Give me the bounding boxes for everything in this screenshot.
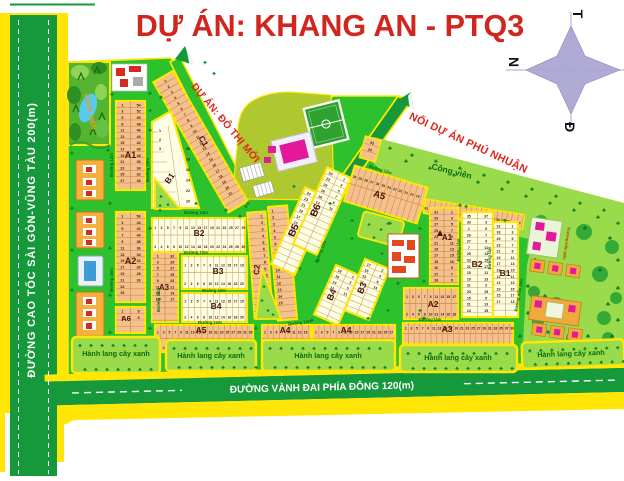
- svg-text:4: 4: [412, 312, 414, 316]
- svg-text:29: 29: [434, 216, 438, 220]
- svg-text:15: 15: [484, 290, 488, 294]
- svg-text:25: 25: [434, 229, 438, 233]
- svg-text:♣: ♣: [466, 366, 470, 372]
- svg-text:♣: ♣: [577, 361, 581, 367]
- svg-text:♣: ♣: [148, 226, 152, 232]
- svg-text:A4: A4: [341, 325, 352, 335]
- svg-text:25: 25: [229, 226, 233, 230]
- svg-text:Đường 12m: Đường 12m: [109, 153, 114, 177]
- svg-text:16: 16: [446, 312, 450, 316]
- svg-text:21: 21: [372, 331, 376, 335]
- svg-text:33: 33: [249, 331, 253, 335]
- svg-text:7: 7: [263, 254, 265, 258]
- svg-text:♣: ♣: [238, 214, 242, 220]
- svg-text:15: 15: [120, 141, 124, 145]
- svg-text:7: 7: [174, 331, 176, 335]
- svg-text:♣: ♣: [70, 151, 74, 157]
- svg-text:5: 5: [276, 331, 278, 335]
- svg-text:23: 23: [120, 285, 124, 289]
- svg-text:11: 11: [276, 275, 280, 279]
- svg-text:♣: ♣: [70, 288, 74, 294]
- svg-text:♣: ♣: [350, 236, 354, 242]
- svg-text:♣: ♣: [232, 365, 236, 371]
- svg-text:♣: ♣: [221, 365, 225, 371]
- svg-text:15: 15: [484, 309, 488, 313]
- svg-text:17: 17: [497, 300, 501, 304]
- svg-text:35: 35: [499, 327, 503, 331]
- svg-text:7: 7: [468, 246, 470, 250]
- svg-text:56: 56: [137, 214, 141, 218]
- svg-text:3: 3: [410, 327, 412, 331]
- svg-text:16: 16: [227, 282, 231, 286]
- svg-text:4: 4: [191, 316, 193, 320]
- svg-text:9: 9: [180, 331, 182, 335]
- svg-text:♣: ♣: [254, 365, 258, 371]
- svg-text:14: 14: [278, 295, 282, 299]
- svg-text:♣: ♣: [548, 201, 552, 207]
- svg-text:40: 40: [137, 147, 141, 151]
- svg-text:23: 23: [467, 290, 471, 294]
- svg-text:♣: ♣: [608, 235, 613, 242]
- svg-text:15: 15: [434, 260, 438, 264]
- svg-text:♣: ♣: [528, 348, 532, 354]
- svg-text:46: 46: [137, 129, 141, 133]
- svg-text:♣: ♣: [383, 365, 387, 371]
- svg-text:21: 21: [467, 265, 471, 269]
- svg-text:15: 15: [497, 294, 501, 298]
- svg-text:23: 23: [378, 331, 382, 335]
- svg-text:13: 13: [497, 281, 501, 285]
- svg-text:2: 2: [184, 316, 186, 320]
- svg-text:♣: ♣: [110, 92, 114, 98]
- svg-text:♣: ♣: [317, 365, 321, 371]
- svg-text:A1: A1: [442, 233, 453, 242]
- svg-text:6: 6: [274, 242, 276, 246]
- svg-text:3: 3: [321, 331, 323, 335]
- svg-text:16: 16: [227, 316, 231, 320]
- svg-text:7: 7: [121, 234, 123, 238]
- svg-text:23: 23: [120, 166, 124, 170]
- svg-text:13: 13: [191, 331, 195, 335]
- svg-text:15: 15: [227, 299, 231, 303]
- svg-text:33: 33: [467, 221, 471, 225]
- svg-text:8: 8: [264, 260, 266, 264]
- svg-text:1: 1: [184, 299, 186, 303]
- svg-text:8: 8: [121, 122, 123, 126]
- svg-text:♣: ♣: [586, 333, 591, 340]
- svg-text:B2: B2: [194, 228, 205, 238]
- svg-text:♣: ♣: [616, 285, 621, 292]
- svg-text:40: 40: [137, 234, 141, 238]
- svg-text:27: 27: [235, 226, 239, 230]
- svg-text:♣: ♣: [378, 346, 382, 352]
- svg-text:A2: A2: [125, 256, 137, 266]
- svg-text:1: 1: [157, 331, 159, 335]
- svg-text:18: 18: [434, 278, 438, 282]
- svg-text:B3: B3: [213, 266, 224, 276]
- svg-text:1: 1: [406, 295, 408, 299]
- svg-text:♣: ♣: [530, 187, 534, 193]
- svg-text:♣: ♣: [149, 367, 153, 373]
- svg-text:♣: ♣: [444, 366, 448, 372]
- svg-text:29: 29: [237, 331, 241, 335]
- svg-text:28: 28: [186, 158, 190, 162]
- svg-text:♣: ♣: [108, 201, 112, 207]
- svg-text:23: 23: [497, 243, 501, 247]
- svg-text:A1: A1: [125, 150, 137, 160]
- svg-text:5: 5: [512, 237, 514, 241]
- svg-text:12: 12: [185, 245, 189, 249]
- svg-text:20: 20: [210, 245, 214, 249]
- svg-text:1: 1: [184, 264, 186, 268]
- svg-text:10: 10: [429, 312, 433, 316]
- svg-text:Đường 16m: Đường 16m: [109, 268, 114, 292]
- svg-text:32: 32: [170, 254, 174, 258]
- svg-text:5: 5: [167, 226, 169, 230]
- svg-text:♣: ♣: [505, 351, 509, 357]
- svg-text:2: 2: [154, 245, 156, 249]
- svg-text:12: 12: [215, 282, 219, 286]
- svg-text:♣: ♣: [372, 365, 376, 371]
- svg-text:♣: ♣: [108, 330, 112, 336]
- svg-text:♣: ♣: [199, 365, 203, 371]
- svg-text:♣: ♣: [188, 365, 192, 371]
- svg-text:3: 3: [191, 299, 193, 303]
- svg-text:4: 4: [161, 245, 163, 249]
- svg-text:♣: ♣: [158, 208, 162, 214]
- svg-text:38: 38: [137, 240, 141, 244]
- svg-text:♣: ♣: [298, 266, 302, 272]
- svg-text:23: 23: [223, 226, 227, 230]
- svg-text:15: 15: [304, 331, 308, 335]
- svg-text:18: 18: [204, 245, 208, 249]
- svg-text:5: 5: [197, 264, 199, 268]
- svg-text:13: 13: [511, 281, 515, 285]
- svg-text:Hành lang cây xanh: Hành lang cây xanh: [82, 349, 150, 358]
- svg-text:♣: ♣: [295, 365, 299, 371]
- svg-text:♣: ♣: [555, 361, 559, 367]
- svg-text:3: 3: [191, 264, 193, 268]
- svg-text:3: 3: [157, 260, 159, 264]
- svg-text:♣: ♣: [339, 365, 343, 371]
- svg-text:Đường tâm: Đường tâm: [456, 238, 461, 261]
- svg-text:21: 21: [170, 285, 174, 289]
- svg-text:23: 23: [170, 279, 174, 283]
- svg-text:♣: ♣: [380, 251, 384, 257]
- svg-text:5: 5: [121, 116, 123, 120]
- svg-text:B2: B2: [472, 259, 483, 269]
- svg-text:3: 3: [159, 147, 161, 151]
- svg-text:13: 13: [277, 288, 281, 292]
- svg-text:4: 4: [163, 346, 165, 350]
- svg-text:22: 22: [216, 245, 220, 249]
- svg-text:15: 15: [355, 331, 359, 335]
- svg-text:♣: ♣: [148, 326, 152, 332]
- svg-text:♣: ♣: [596, 215, 600, 221]
- svg-text:21: 21: [460, 327, 464, 331]
- svg-text:1: 1: [451, 210, 453, 214]
- svg-text:♣: ♣: [210, 365, 214, 371]
- svg-text:36: 36: [137, 160, 141, 164]
- svg-text:13: 13: [484, 277, 488, 281]
- svg-text:29: 29: [241, 226, 245, 230]
- svg-text:17: 17: [497, 262, 501, 266]
- svg-text:♣: ♣: [578, 201, 582, 207]
- svg-text:21: 21: [120, 278, 124, 282]
- svg-text:16: 16: [450, 260, 454, 264]
- svg-text:♣: ♣: [616, 345, 620, 351]
- svg-text:34: 34: [137, 166, 141, 170]
- svg-text:7: 7: [512, 243, 514, 247]
- svg-text:♣: ♣: [108, 293, 112, 299]
- svg-text:13: 13: [484, 303, 488, 307]
- svg-text:♣: ♣: [396, 281, 400, 287]
- svg-text:Đường 12m: Đường 12m: [202, 288, 226, 293]
- svg-text:♣: ♣: [464, 204, 468, 210]
- svg-text:16: 16: [434, 266, 438, 270]
- svg-text:9: 9: [179, 226, 181, 230]
- svg-text:19: 19: [454, 327, 458, 331]
- svg-text:10: 10: [178, 245, 182, 249]
- svg-text:♣: ♣: [554, 194, 558, 200]
- svg-text:2: 2: [159, 138, 161, 142]
- svg-text:14: 14: [221, 316, 225, 320]
- svg-text:7: 7: [422, 327, 424, 331]
- svg-text:♣: ♣: [477, 366, 481, 372]
- svg-text:♣: ♣: [433, 366, 437, 372]
- svg-text:5: 5: [121, 227, 123, 231]
- svg-text:7: 7: [451, 272, 453, 276]
- svg-text:♣: ♣: [606, 301, 611, 308]
- svg-text:3: 3: [412, 295, 414, 299]
- svg-text:5: 5: [262, 241, 264, 245]
- svg-text:15: 15: [467, 271, 471, 275]
- svg-text:48: 48: [137, 122, 141, 126]
- svg-text:Đường tâm: Đường tâm: [419, 317, 442, 322]
- svg-text:54: 54: [137, 103, 141, 107]
- svg-text:♣: ♣: [177, 365, 181, 371]
- svg-text:30: 30: [186, 147, 190, 151]
- svg-text:♣: ♣: [328, 201, 332, 207]
- svg-text:♣: ♣: [284, 365, 288, 371]
- svg-text:11: 11: [120, 129, 124, 133]
- svg-text:3: 3: [270, 331, 272, 335]
- svg-text:5: 5: [327, 331, 329, 335]
- svg-text:♣: ♣: [212, 71, 216, 77]
- svg-text:18: 18: [452, 312, 456, 316]
- svg-text:5: 5: [451, 266, 453, 270]
- svg-text:7: 7: [173, 226, 175, 230]
- svg-text:29: 29: [497, 237, 501, 241]
- svg-text:9: 9: [264, 267, 266, 271]
- svg-text:1: 1: [121, 310, 123, 314]
- svg-text:Hành lang cây xanh: Hành lang cây xanh: [177, 351, 245, 360]
- svg-text:Đường 12m: Đường 12m: [198, 320, 222, 325]
- svg-text:Đường 12m: Đường 12m: [184, 250, 208, 255]
- svg-text:♣: ♣: [494, 351, 498, 357]
- svg-text:33: 33: [497, 231, 501, 235]
- svg-text:♣: ♣: [106, 148, 110, 154]
- svg-text:37: 37: [484, 214, 488, 218]
- svg-text:1: 1: [261, 214, 263, 218]
- svg-text:3: 3: [485, 221, 487, 225]
- svg-text:♣: ♣: [499, 366, 503, 372]
- svg-text:Đường tâm: Đường tâm: [487, 246, 492, 269]
- svg-text:19: 19: [497, 256, 501, 260]
- svg-text:2: 2: [272, 216, 274, 220]
- svg-text:32: 32: [137, 259, 141, 263]
- svg-text:7: 7: [485, 233, 487, 237]
- svg-text:♣: ♣: [422, 279, 426, 285]
- svg-text:21: 21: [434, 241, 438, 245]
- svg-text:13: 13: [450, 247, 454, 251]
- svg-text:26: 26: [229, 245, 233, 249]
- svg-text:25: 25: [226, 331, 230, 335]
- svg-text:11: 11: [185, 226, 189, 230]
- svg-text:7: 7: [424, 295, 426, 299]
- svg-text:11: 11: [185, 331, 189, 335]
- svg-text:20: 20: [186, 200, 190, 204]
- svg-text:9: 9: [121, 240, 123, 244]
- svg-text:15: 15: [511, 268, 515, 272]
- svg-text:2: 2: [184, 282, 186, 286]
- svg-text:13: 13: [467, 309, 471, 313]
- svg-text:19: 19: [240, 264, 244, 268]
- svg-text:19: 19: [467, 277, 471, 281]
- svg-text:18: 18: [234, 316, 238, 320]
- svg-text:17: 17: [234, 299, 238, 303]
- svg-text:N: N: [506, 57, 522, 67]
- svg-text:23: 23: [467, 258, 471, 262]
- svg-text:19: 19: [434, 247, 438, 251]
- svg-text:♣: ♣: [458, 203, 462, 209]
- svg-text:3: 3: [273, 222, 275, 226]
- svg-text:♣: ♣: [367, 346, 371, 352]
- svg-text:2: 2: [406, 312, 408, 316]
- svg-text:♣: ♣: [292, 184, 296, 190]
- svg-text:3: 3: [512, 231, 514, 235]
- svg-text:♣: ♣: [108, 246, 112, 252]
- svg-text:21: 21: [120, 160, 124, 164]
- svg-text:9: 9: [427, 327, 429, 331]
- svg-text:17: 17: [360, 331, 364, 335]
- svg-text:13: 13: [440, 295, 444, 299]
- svg-text:♣: ♣: [350, 365, 354, 371]
- svg-text:♣: ♣: [524, 194, 528, 200]
- svg-text:♣: ♣: [172, 346, 176, 352]
- svg-text:5: 5: [451, 223, 453, 227]
- svg-text:15: 15: [450, 254, 454, 258]
- svg-text:26: 26: [186, 168, 190, 172]
- svg-text:17: 17: [434, 254, 438, 258]
- svg-text:31: 31: [488, 327, 492, 331]
- svg-text:♣: ♣: [602, 208, 606, 214]
- svg-text:13: 13: [221, 299, 225, 303]
- svg-text:4: 4: [191, 282, 193, 286]
- svg-text:3: 3: [261, 227, 263, 231]
- svg-text:11: 11: [511, 275, 515, 279]
- svg-text:27: 27: [467, 240, 471, 244]
- svg-text:11: 11: [511, 256, 515, 260]
- svg-text:♣: ♣: [249, 346, 253, 352]
- svg-text:♣: ♣: [500, 187, 504, 193]
- svg-text:19: 19: [208, 331, 212, 335]
- svg-text:♣: ♣: [361, 365, 365, 371]
- svg-text:44: 44: [137, 135, 141, 139]
- svg-text:7: 7: [203, 299, 205, 303]
- svg-text:14: 14: [221, 282, 225, 286]
- svg-text:29: 29: [482, 327, 486, 331]
- svg-text:♣: ♣: [404, 159, 408, 165]
- svg-text:29: 29: [467, 233, 471, 237]
- svg-text:13: 13: [120, 135, 124, 139]
- svg-text:20: 20: [240, 282, 244, 286]
- svg-text:♣: ♣: [583, 225, 588, 232]
- svg-text:♣: ♣: [503, 218, 507, 224]
- svg-text:28: 28: [235, 245, 239, 249]
- svg-text:20: 20: [240, 316, 244, 320]
- svg-text:4: 4: [273, 229, 275, 233]
- svg-text:♣: ♣: [417, 351, 421, 357]
- svg-text:♣: ♣: [350, 218, 354, 224]
- svg-text:♣: ♣: [148, 108, 152, 114]
- svg-text:19: 19: [240, 299, 244, 303]
- svg-text:1: 1: [468, 227, 470, 231]
- svg-text:♣: ♣: [572, 208, 576, 214]
- svg-text:10: 10: [208, 282, 212, 286]
- svg-text:27: 27: [120, 179, 124, 183]
- svg-text:♣: ♣: [116, 367, 120, 373]
- svg-text:4: 4: [262, 234, 264, 238]
- svg-text:A3: A3: [442, 324, 453, 334]
- svg-text:6: 6: [197, 282, 199, 286]
- svg-text:26: 26: [137, 278, 141, 282]
- svg-text:1: 1: [121, 103, 123, 107]
- svg-text:♣: ♣: [476, 180, 480, 186]
- svg-text:11: 11: [484, 271, 488, 275]
- svg-text:♣: ♣: [94, 367, 98, 373]
- svg-text:Đường 16m: Đường 16m: [145, 158, 150, 182]
- svg-text:25: 25: [384, 331, 388, 335]
- svg-text:21: 21: [216, 226, 220, 230]
- svg-text:♣: ♣: [194, 201, 198, 207]
- svg-text:42: 42: [137, 227, 141, 231]
- svg-text:8: 8: [173, 245, 175, 249]
- svg-text:17: 17: [120, 266, 124, 270]
- svg-text:♣: ♣: [406, 351, 410, 357]
- svg-text:21: 21: [497, 250, 501, 254]
- svg-text:♣: ♣: [159, 95, 163, 101]
- svg-text:27: 27: [170, 267, 174, 271]
- svg-text:♣: ♣: [588, 360, 592, 366]
- svg-text:1: 1: [271, 209, 273, 213]
- svg-text:3: 3: [485, 284, 487, 288]
- svg-text:33: 33: [494, 327, 498, 331]
- svg-text:16: 16: [197, 245, 201, 249]
- svg-text:ĐƯỜNG CAO TỐC SÀI GÒN-VŨNG TÀU: ĐƯỜNG CAO TỐC SÀI GÒN-VŨNG TÀU 200(m): [24, 102, 38, 377]
- svg-text:21: 21: [467, 303, 471, 307]
- svg-text:13: 13: [298, 331, 302, 335]
- svg-text:11: 11: [432, 327, 436, 331]
- svg-text:9: 9: [512, 250, 514, 254]
- svg-text:8: 8: [203, 316, 205, 320]
- svg-text:32: 32: [137, 173, 141, 177]
- svg-text:42: 42: [137, 141, 141, 145]
- svg-text:21: 21: [467, 284, 471, 288]
- svg-text:♣: ♣: [533, 362, 537, 368]
- svg-text:19: 19: [120, 272, 124, 276]
- svg-text:29: 29: [170, 260, 174, 264]
